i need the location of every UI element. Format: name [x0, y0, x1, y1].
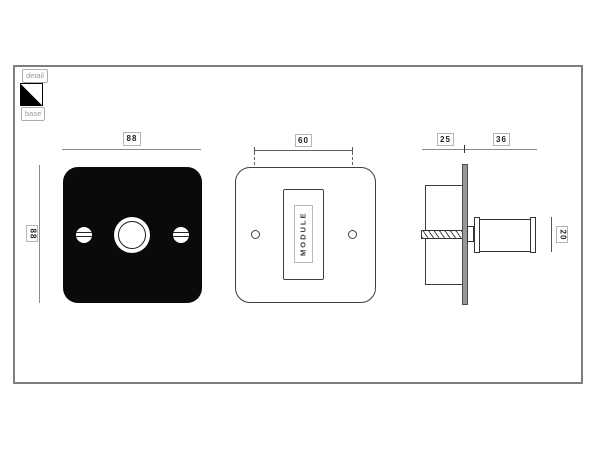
dimension-label-hole-spacing: 60 — [295, 134, 312, 147]
dimension-label-height-text: 88 — [28, 228, 36, 239]
dimension-label-knob-diameter: 20 — [556, 226, 568, 243]
module-label-text: MODULE — [300, 212, 308, 257]
fixing-hole-right — [348, 230, 357, 239]
knob-flange-right — [530, 217, 536, 253]
legend-detail-label: detail — [22, 69, 48, 83]
dimension-label-recess-depth: 25 — [437, 133, 454, 146]
knob-body-side — [479, 219, 531, 252]
dimension-line-height — [39, 165, 40, 303]
dimmer-knob-ring — [118, 221, 146, 249]
fixing-hole-left — [251, 230, 260, 239]
dimension-label-width: 88 — [123, 132, 141, 146]
knob-bush — [467, 226, 474, 242]
dimension-line-knob-diameter — [551, 217, 552, 252]
threaded-rod-icon — [421, 230, 464, 239]
technical-drawing-canvas: detail base 88 88 60 MODULE 25 36 — [0, 0, 600, 450]
dimension-tick-wall — [464, 145, 465, 153]
dimension-line-depth — [422, 149, 537, 150]
dimension-line-width — [62, 149, 201, 150]
detail-base-swatch-icon — [20, 83, 43, 106]
screw-right-icon — [173, 227, 189, 243]
screw-left-icon — [76, 227, 92, 243]
legend-base-label: base — [21, 107, 45, 121]
dimension-label-height: 88 — [26, 225, 38, 242]
dimension-label-projection: 36 — [493, 133, 510, 146]
module-label-box: MODULE — [294, 205, 313, 263]
dimension-label-knob-diameter-text: 20 — [558, 229, 566, 240]
dimension-line-hole-spacing — [254, 150, 353, 151]
